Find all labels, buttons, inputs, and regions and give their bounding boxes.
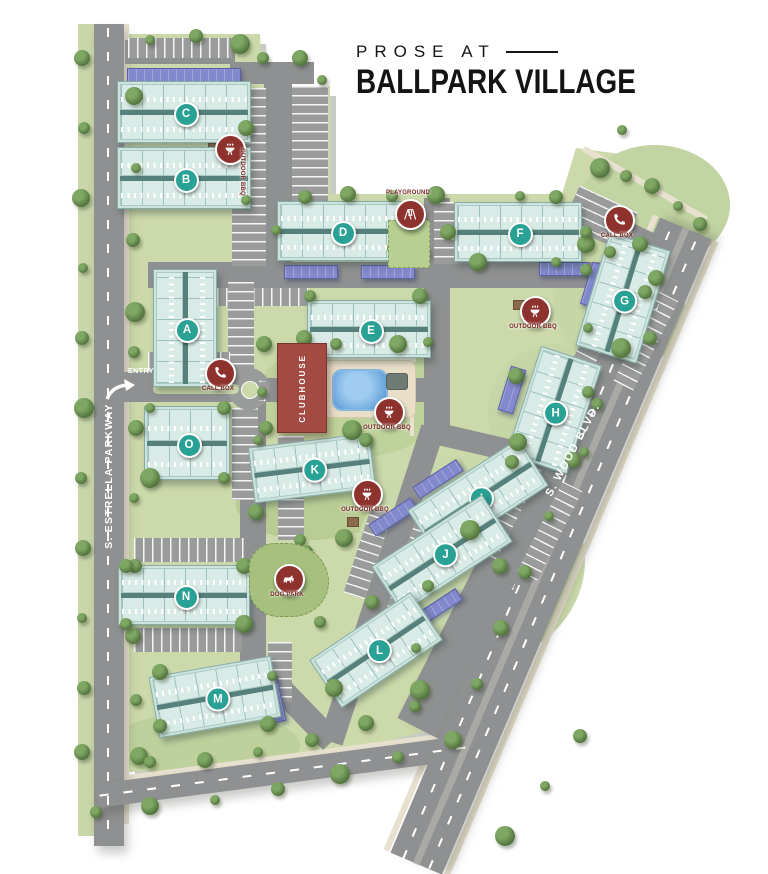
tree: [495, 826, 515, 846]
tree: [78, 263, 88, 273]
tree: [253, 435, 263, 445]
title-main: BALLPARK VILLAGE: [356, 63, 636, 102]
tree: [493, 620, 509, 636]
tree: [590, 158, 610, 178]
building-N: N: [118, 565, 250, 625]
amenity-label: DOG PARK: [255, 592, 319, 598]
tree: [152, 664, 168, 680]
tree: [267, 671, 277, 681]
tree: [620, 170, 632, 182]
tree: [365, 595, 379, 609]
building-badge-H: H: [543, 400, 568, 425]
tree: [330, 338, 342, 350]
tree: [75, 331, 89, 345]
tree: [74, 398, 94, 418]
building-badge-D: D: [331, 221, 356, 246]
tree: [304, 290, 316, 302]
tree: [638, 285, 652, 299]
tree: [120, 618, 132, 630]
bbq-icon: [527, 303, 543, 319]
tree: [210, 795, 220, 805]
tree: [392, 751, 404, 763]
parkway-green-strip: [78, 24, 94, 836]
tree: [469, 253, 487, 271]
tree: [549, 190, 563, 204]
tree: [518, 565, 532, 579]
tree: [422, 580, 434, 592]
tree: [409, 700, 421, 712]
tree: [77, 681, 91, 695]
amenity-label: OUTDOOR BBQ: [501, 324, 565, 330]
building-badge-E: E: [359, 319, 384, 344]
amenity-marker: [352, 479, 383, 510]
tree: [471, 678, 483, 690]
tree: [257, 52, 269, 64]
tree: [125, 87, 143, 105]
tree: [515, 191, 525, 201]
tree: [74, 50, 90, 66]
tree: [410, 680, 430, 700]
tree: [145, 35, 155, 45]
tree: [140, 468, 160, 488]
tree: [444, 731, 462, 749]
amenity-marker: [395, 199, 426, 230]
amenity-marker: [274, 564, 305, 595]
tree: [125, 302, 145, 322]
tree: [540, 781, 550, 791]
amenity-marker: [520, 296, 551, 327]
site-plan-map: CBAONMDEFGHIJKLOUTDOOR BBQCALL BOXCALL B…: [0, 0, 768, 874]
tree: [583, 323, 593, 333]
clubhouse-label: CLUBHOUSE: [298, 354, 307, 423]
tree: [317, 75, 327, 85]
parking-lot: [228, 282, 254, 374]
tree: [340, 186, 356, 202]
tree: [325, 679, 343, 697]
building-badge-B: B: [174, 168, 199, 193]
parking-lot: [128, 38, 232, 58]
tree: [153, 719, 167, 733]
tree: [335, 529, 353, 547]
building-badge-A: A: [175, 318, 200, 343]
tree: [693, 217, 707, 231]
amenity-label: OUTDOOR BBQ: [333, 507, 397, 513]
tree: [330, 764, 350, 784]
tree: [72, 189, 90, 207]
tree: [141, 797, 159, 815]
picnic-table: [347, 517, 359, 527]
tree: [644, 178, 660, 194]
tree: [611, 338, 631, 358]
lane-direction-arrow: ←: [257, 375, 268, 386]
parking-lot: [134, 538, 244, 562]
tree: [271, 782, 285, 796]
building-badge-M: M: [205, 686, 230, 711]
map-title: PROSE AT BALLPARK VILLAGE: [356, 42, 697, 102]
tree: [189, 29, 203, 43]
building-badge-C: C: [174, 102, 199, 127]
dog-icon: [281, 571, 297, 587]
pool-ramada: [386, 373, 408, 390]
road-label-estrella-parkway: S. ESTRELLA PARKWAY: [103, 396, 115, 556]
tree: [218, 472, 230, 484]
tree: [74, 744, 90, 760]
tree: [673, 201, 683, 211]
tree: [90, 806, 102, 818]
amenity-label: PLAYGROUND: [376, 190, 440, 196]
parking-lot: [134, 628, 242, 652]
building-badge-O: O: [177, 433, 202, 458]
phone-icon: [212, 365, 228, 381]
tree: [551, 257, 561, 267]
tree: [389, 335, 407, 353]
tree: [643, 331, 657, 345]
tree: [271, 225, 281, 235]
tree: [253, 747, 263, 757]
bbq-icon: [381, 404, 397, 420]
amenity-label: OUTDOOR BBQ: [355, 425, 419, 431]
carport: [284, 265, 338, 279]
tree: [125, 628, 141, 644]
title-dash: [506, 51, 558, 54]
tree: [230, 34, 250, 54]
map-layers: CBAONMDEFGHIJKLOUTDOOR BBQCALL BOXCALL B…: [0, 0, 768, 874]
tree: [129, 493, 139, 503]
tree: [359, 433, 373, 447]
tree: [260, 716, 276, 732]
amenity-marker: [604, 205, 635, 236]
bbq-icon: [359, 486, 375, 502]
tree: [75, 540, 91, 556]
tree: [131, 163, 141, 173]
building-badge-L: L: [366, 638, 391, 663]
entry-arrow-icon: [103, 377, 137, 408]
amenity-label: CALL BOX: [186, 386, 250, 392]
playground-icon: [402, 206, 418, 222]
building-badge-F: F: [508, 222, 533, 247]
tree: [505, 455, 519, 469]
tree: [248, 504, 264, 520]
building-badge-K: K: [302, 457, 327, 482]
tree: [256, 336, 272, 352]
tree: [617, 125, 627, 135]
amenity-marker: [205, 358, 236, 389]
tree: [423, 337, 433, 347]
tree: [130, 694, 142, 706]
amenity-marker: [374, 397, 405, 428]
amenity-label: OUTDOOR BBQ: [239, 140, 245, 204]
building-badge-G: G: [612, 288, 637, 313]
tree: [238, 120, 254, 136]
tree: [509, 433, 527, 451]
tree: [235, 615, 253, 633]
tree: [75, 472, 87, 484]
bbq-icon: [222, 141, 238, 157]
tree: [259, 421, 273, 435]
tree: [492, 558, 508, 574]
tree: [648, 270, 664, 286]
tree: [126, 233, 140, 247]
tree: [144, 756, 156, 768]
building-badge-N: N: [174, 585, 199, 610]
tree: [580, 264, 592, 276]
tree: [604, 246, 616, 258]
tree: [582, 386, 594, 398]
building-badge-J: J: [432, 542, 457, 567]
tree: [411, 643, 421, 653]
tree: [292, 50, 308, 66]
title-prefix: PROSE AT: [356, 42, 496, 62]
tree: [128, 420, 144, 436]
building-O: O: [144, 406, 230, 480]
tree: [358, 715, 374, 731]
tree: [77, 613, 87, 623]
tree: [573, 729, 587, 743]
tree: [460, 520, 480, 540]
tree: [78, 122, 90, 134]
entry-label: ENTRY: [121, 368, 161, 375]
building-D: D: [277, 201, 405, 261]
tree: [197, 752, 213, 768]
tree: [298, 190, 312, 204]
tree: [412, 288, 428, 304]
tree: [145, 403, 155, 413]
tree: [508, 368, 524, 384]
tree: [305, 733, 319, 747]
tree: [128, 346, 140, 358]
amenity-label: CALL BOX: [585, 233, 649, 239]
tree: [119, 559, 133, 573]
tree: [217, 401, 231, 415]
phone-icon: [611, 212, 627, 228]
clubhouse-building: CLUBHOUSE: [277, 343, 327, 433]
tree: [314, 616, 326, 628]
tree: [440, 224, 456, 240]
lane-direction-arrow: →: [257, 394, 268, 405]
parking-lot: [208, 288, 308, 306]
title-prefix-row: PROSE AT: [356, 42, 697, 62]
